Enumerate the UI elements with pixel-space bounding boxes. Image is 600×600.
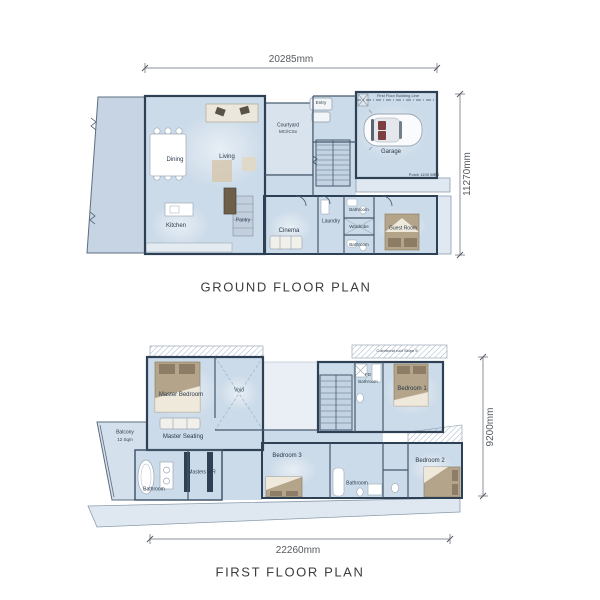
bedroom2-bed (424, 467, 460, 497)
void-gap-roof (263, 362, 318, 430)
bedroom1-bed (394, 364, 428, 406)
car-top-view (364, 110, 422, 150)
floor-plan-sheet: 20285mm 11270mm First Floor Building Lin… (0, 0, 600, 600)
wardrobe-unit (207, 452, 213, 492)
kitchen-counter (146, 243, 232, 252)
master-bed (155, 362, 200, 412)
seating-sofa (160, 418, 200, 429)
hallway-area-1 (222, 450, 262, 500)
courtyard-area (265, 103, 313, 175)
staircase-ground (316, 140, 350, 186)
deck-area (87, 97, 145, 253)
staircase-first (320, 375, 352, 430)
side-strip (437, 196, 451, 254)
rug (212, 160, 232, 182)
guest-bed (385, 214, 419, 250)
cinema-sofa (270, 236, 302, 249)
feature-cabinet (224, 188, 236, 214)
media-wall (206, 104, 258, 122)
bedroom3-bed (266, 477, 302, 497)
roof-below-strip (88, 498, 460, 527)
dining-table (150, 128, 186, 180)
hall-area (265, 175, 318, 196)
wardrobe-unit (184, 452, 190, 492)
first-floor-drawing (0, 315, 600, 600)
ground-floor-drawing (0, 0, 600, 315)
porch-area (356, 178, 450, 192)
